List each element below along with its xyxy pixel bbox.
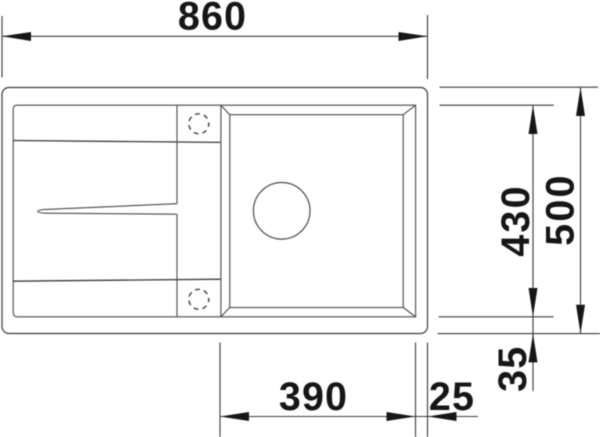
svg-text:430: 430 <box>494 184 538 257</box>
svg-text:500: 500 <box>539 173 583 246</box>
svg-text:860: 860 <box>178 0 247 39</box>
svg-text:25: 25 <box>429 375 475 419</box>
svg-text:390: 390 <box>279 375 348 419</box>
svg-text:35: 35 <box>491 346 535 392</box>
